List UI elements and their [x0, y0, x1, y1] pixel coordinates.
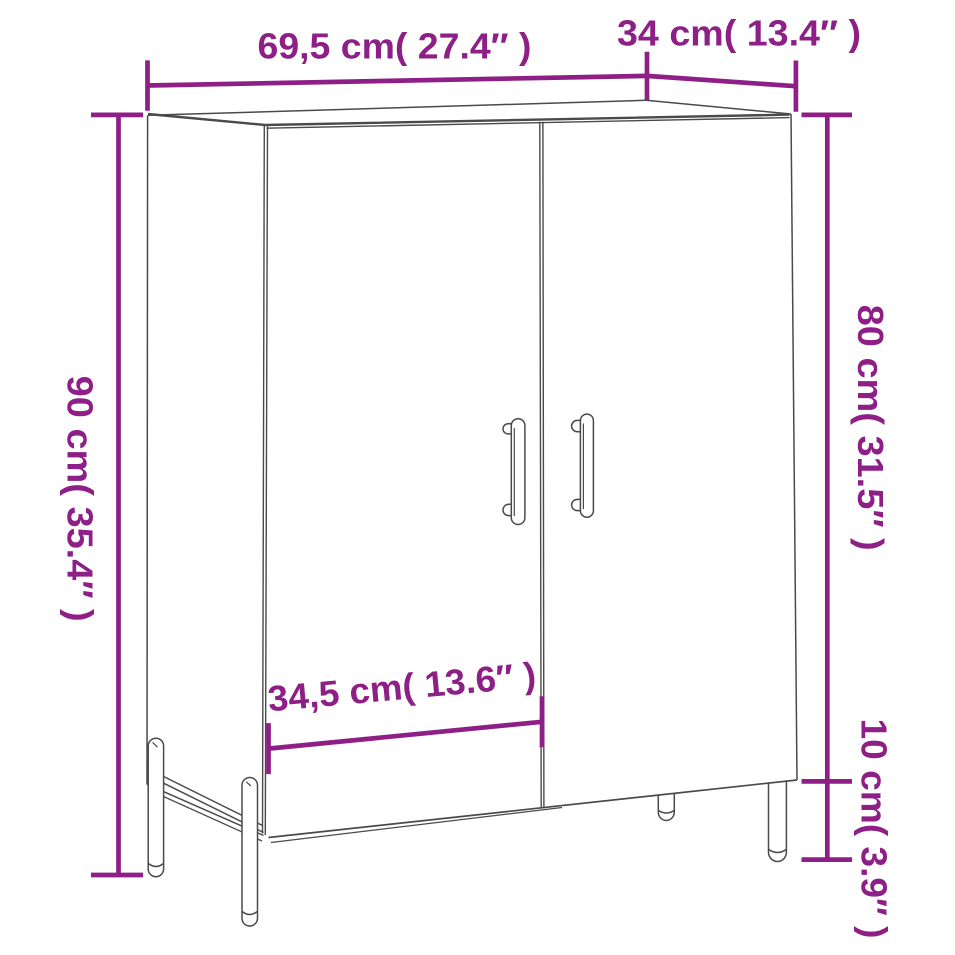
svg-text:34 cm( 13.4″ ): 34 cm( 13.4″ ): [617, 13, 861, 54]
svg-text:10 cm( 3.9″ ): 10 cm( 3.9″ ): [854, 719, 895, 939]
svg-text:69,5 cm( 27.4″ ): 69,5 cm( 27.4″ ): [258, 26, 532, 67]
svg-text:90 cm( 35.4″ ): 90 cm( 35.4″ ): [60, 376, 101, 622]
svg-text:80 cm( 31.5″ ): 80 cm( 31.5″ ): [850, 305, 891, 551]
